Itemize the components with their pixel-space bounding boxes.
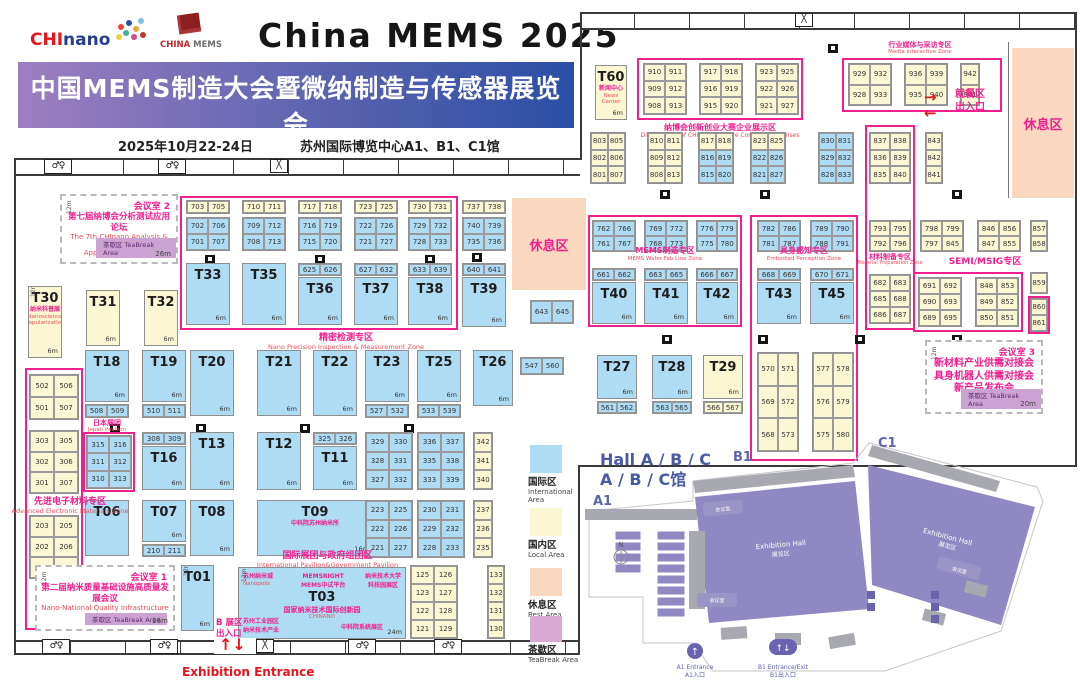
booth-group-668: 668669 [757,268,801,281]
booth-739: 739 [484,218,505,234]
booth-group-533: 533539 [417,404,461,418]
booth-T16-size: 6m [172,479,182,487]
booth-301: 301 [30,472,54,493]
meeting-room-3-size: 20m [1020,400,1036,408]
zone-advanced-en: Advanced Electronic Materials Zone [0,508,140,515]
booth-group-721: 722726721727 [354,217,398,251]
chinano-logo-text-red: CHI [30,30,63,50]
booth-T31: T316m [86,290,120,346]
booth-T43: T436m [757,282,801,324]
booth-920: 920 [721,97,742,114]
booth-855: 855 [999,236,1020,251]
booth-342: 342 [474,433,492,452]
booth-T29-size: 6m [729,388,739,396]
booth-T39-size: 6m [492,316,502,324]
booth-T20-label: T20 [199,356,226,369]
booth-303: 303 [30,431,54,452]
booth-850: 850 [976,310,997,326]
booth-T42: T426m [696,282,738,324]
booth-858: 858 [1031,236,1047,251]
booth-group-627: 627632 [354,263,398,276]
booth-group-857s: 857858 [1030,220,1048,252]
booth-703: 703 [187,201,208,213]
booth-309: 309 [164,433,185,444]
booth-T08-label: T08 [199,506,226,519]
booth-327: 327 [366,470,389,489]
booth-group-640: 640641 [462,263,506,276]
booth-827: 827 [768,166,785,183]
booth-237: 237 [474,501,492,520]
wall-left [14,158,16,655]
rest-area-left-label: 休息区 [529,235,568,254]
chinano-logo: CHInano [30,30,110,50]
booth-T08: T086m [190,500,234,556]
booth-859: 859 [1031,273,1047,293]
booth-128: 128 [434,602,457,620]
booth-719: 719 [320,218,341,234]
booth-132: 132 [488,584,504,602]
page-title: China MEMS 2025 [258,16,620,55]
meeting-room-1-title: 第二届纳米质量基础设施高质量发展会议 [37,583,173,604]
booth-567: 567 [723,402,742,413]
booth-T25-size: 6m [447,391,457,399]
meeting-room-2-id: 会议室 2 [62,196,176,212]
booth-T35-size: 6m [272,314,282,322]
booth-group-730: 730731 [408,200,452,214]
booth-563: 563 [653,402,672,413]
booth-T33-size: 6m [216,314,226,322]
booth-T03: 苏州纳米城 Nanopolis MEMSRIGHT MEMS中试平台 纳米技术大… [238,567,406,639]
legend-international: 国际区 International Area [528,477,590,504]
booth-group-800c: 817818816819815820 [698,132,734,184]
legend-swatch-local [530,508,562,536]
booth-691: 691 [919,278,940,294]
booth-T43-label: T43 [766,288,793,301]
booth-group-715: 716719715720 [298,217,342,251]
booth-939: 939 [926,64,947,85]
booth-643: 643 [531,301,552,323]
booth-632: 632 [376,264,397,275]
booth-T23-size: 6m [395,391,405,399]
booth-group-340s: 342341340 [473,432,493,490]
zone-media-cn: 行业媒体与采访专区 [845,41,995,49]
booth-T01-size: 6m [200,620,210,628]
booth-560: 560 [542,358,563,374]
booth-311: 311 [87,453,109,470]
door-icon [472,253,482,262]
booth-T07-label: T07 [151,506,178,519]
booth-310: 310 [87,471,109,488]
booth-T18: T186m [85,350,129,402]
booth-625: 625 [299,264,320,275]
booth-group-680s: 682683685688686687 [869,274,911,324]
elevator-icon [795,13,813,27]
booth-817: 817 [699,133,716,150]
booth-302: 302 [30,452,54,473]
booth-645: 645 [552,301,573,323]
booth-T08-size: 6m [220,545,230,553]
dining-arrow-right-icon: → [924,90,937,105]
booth-702: 702 [187,218,208,234]
t03-chinano: CHINANO [309,614,335,620]
floorplan-page: CHInano CHINA MEMS China MEMS 2025 中国MEM… [0,0,1080,691]
booth-group-663: 663665 [644,268,688,281]
zone-embodied-label: 具身感知专区 Embodied Perception Zone [750,246,858,262]
booth-627: 627 [355,264,376,275]
china-mems-logo-red: CHINA [160,40,193,50]
legend-international-en: International Area [528,488,590,504]
booth-772: 772 [666,221,687,236]
booth-935: 935 [905,85,926,106]
booth-837: 837 [870,133,890,150]
zone-japan-cn: 日本展团 [80,419,134,427]
booth-861: 861 [1031,315,1047,331]
booth-502: 502 [30,375,54,397]
booth-692: 692 [940,278,961,294]
booth-852: 852 [997,294,1018,310]
booth-T30-sub-en: Nanoscience Popularization [28,314,62,326]
booth-571: 571 [778,353,798,386]
booth-T22: T226m [313,350,357,416]
booth-716: 716 [299,218,320,234]
booth-group-561: 561562 [597,401,637,414]
meeting-room-2: 会议室 2 第七届纳博会分析测试应用论坛 The 7th CHInano Ana… [60,194,178,264]
booth-823: 823 [751,133,768,150]
booth-723: 723 [355,201,376,213]
banner: 中国MEMS制造大会暨微纳制造与传感器展览会 China MEMS Manufa… [18,62,574,128]
booth-308: 308 [143,433,164,444]
meeting-room-1-size: 26m [152,617,168,625]
booth-130: 130 [488,620,504,638]
wall-bottom-left-section [14,653,580,655]
booth-T12-size: 6m [287,479,297,487]
booth-928: 928 [849,85,870,106]
booth-725: 725 [376,201,397,213]
booth-307: 307 [54,472,78,493]
booth-233: 233 [441,538,464,557]
door-icon [760,190,770,199]
booth-T21-size: 6m [287,405,297,413]
booth-T18-size: 6m [115,391,125,399]
booth-732: 732 [430,218,451,234]
booth-722: 722 [355,218,376,234]
booth-group-527: 527532 [365,404,409,418]
booth-776: 776 [697,221,717,236]
booth-T11-label: T11 [322,452,349,465]
booth-group-508: 508509 [85,404,129,418]
booth-T12-label: T12 [266,438,293,451]
zone-material-en: Material Preparation Zone [850,261,930,267]
booth-T30-depth: 12m [30,286,37,297]
booth-228: 228 [418,538,441,557]
booth-738: 738 [484,201,505,213]
legend-swatch-international [530,445,562,473]
booth-687: 687 [890,307,910,323]
booth-T32: T326m [144,290,178,346]
booth-T36-size: 6m [328,314,338,322]
booth-335: 335 [418,452,441,471]
booth-851: 851 [997,310,1018,326]
booth-915: 915 [700,97,721,114]
booth-336: 336 [418,433,441,452]
booth-group-843s: 843842841 [925,132,943,184]
elevator-icon [270,159,288,173]
banner-title-cn: 中国MEMS制造大会暨微纳制造与传感器展览会 [18,69,574,141]
booth-T40-size: 6m [622,313,632,321]
zone-mems-en: MEMS Wafer Fab Line Zone [590,256,740,262]
booth-T60-sub-en: News Center [596,93,626,105]
booth-T27-size: 6m [623,388,633,396]
booth-717: 717 [299,201,320,213]
booth-group-837s: 837838836839835840 [869,132,911,184]
booth-833: 833 [836,166,853,183]
booth-T40-label: T40 [601,288,628,301]
booth-769: 769 [645,221,666,236]
legend-teabreak-cn: 茶歇区 [528,645,590,656]
booth-639: 639 [430,264,451,275]
booth-801: 801 [591,166,608,183]
toilet-icon [42,639,70,654]
booth-539: 539 [439,405,460,417]
booth-210: 210 [143,545,164,556]
booth-339: 339 [441,470,464,489]
booth-942: 942 [961,64,979,85]
booth-group-701: 702706701707 [186,217,230,251]
t03-cas: 中科院系统展区 [341,625,383,632]
booth-313: 313 [109,471,131,488]
booth-T28: T286m [652,355,692,399]
booth-686: 686 [870,307,890,323]
booth-group-703: 703705 [186,200,230,214]
booth-726: 726 [376,218,397,234]
booth-331: 331 [389,452,412,471]
booth-T30: T30纳米科普展Nanoscience Popularization6m12m [28,286,62,358]
a1-corridor [585,509,697,520]
booth-121: 121 [411,620,434,638]
booth-579: 579 [833,386,853,419]
booth-T33-label: T33 [195,269,222,282]
booth-728: 728 [409,234,430,250]
booth-670: 670 [811,269,832,280]
exhibition-entrance-label: Exhibition Entrance [182,666,314,678]
toilet-icon [348,639,376,654]
door-icon [758,335,768,344]
booth-T19-label: T19 [151,356,178,369]
booth-836: 836 [870,150,890,167]
booth-127: 127 [434,584,457,602]
booth-917: 917 [700,64,721,81]
event-date: 2025年10月22-24日 [118,136,253,155]
booth-T45: T456m [810,282,854,324]
zone-embodied-cn: 具身感知专区 [750,246,858,256]
booth-T19: T196m [142,350,186,402]
booth-T25-label: T25 [426,356,453,369]
booth-T20: T206m [190,350,234,416]
booth-707: 707 [208,234,229,250]
booth-718: 718 [320,201,341,213]
booth-913: 913 [665,97,686,114]
booth-T09-sub: 中科院苏州纳米所 [291,521,339,528]
booth-group-929s: 929932928933 [848,63,892,106]
booth-812: 812 [665,150,682,167]
booth-326: 326 [335,433,356,444]
booth-565: 565 [672,402,691,413]
booth-T37-label: T37 [363,283,390,296]
b1-entrance-en: B1 Entrance/Exit [758,664,809,671]
booth-805: 805 [608,133,625,150]
booth-T60: T60新闻中心News Center6m [595,65,627,120]
booth-123: 123 [411,584,434,602]
booth-group-790c: 793795792796 [869,220,911,252]
booth-T60-size: 6m [613,109,623,117]
booth-661: 661 [593,269,614,280]
wall-right-top [580,12,582,160]
booth-533: 533 [418,405,439,417]
booth-762: 762 [593,221,614,236]
entrance-b-line1: B 展区 [216,618,242,629]
booth-731: 731 [430,201,451,213]
booth-633: 633 [409,264,430,275]
booth-236: 236 [474,520,492,539]
booth-235: 235 [474,538,492,557]
booth-848: 848 [976,278,997,294]
booth-T60-label: T60 [598,71,625,84]
event-venue: 苏州国际博览中心A1、B1、C1馆 [300,136,500,155]
legend-swatch-rest [530,568,562,596]
booth-803: 803 [591,133,608,150]
booth-341: 341 [474,452,492,471]
booth-735: 735 [463,234,484,250]
booth-T27-label: T27 [604,361,631,374]
booth-910: 910 [644,64,665,81]
booth-927: 927 [777,97,798,114]
booth-570: 570 [758,353,778,386]
booth-group-717: 717718 [298,200,342,214]
booth-group-japan: 315316311312310313 [86,435,132,489]
booth-562: 562 [617,402,636,413]
booth-507: 507 [54,397,78,419]
booth-group-910s: 910911909912908913 [643,63,687,115]
b1-entrance-cn: B1出入口 [770,671,796,679]
booth-911: 911 [665,64,686,81]
booth-561: 561 [598,402,617,413]
booth-group-708: 709712708713 [242,217,286,251]
booth-T07: T076m [142,500,186,542]
zone-media-label: 行业媒体与采访专区 Media Interactive Zone [845,41,995,56]
booth-789: 789 [811,221,832,236]
booth-912: 912 [665,81,686,98]
booth-223: 223 [366,501,389,520]
booth-918: 918 [721,64,742,81]
booth-T16: T166m [142,446,186,490]
dining-line1: 就餐区 [955,88,985,101]
booth-group-710: 710711 [242,200,286,214]
booth-T38-label: T38 [417,283,444,296]
booth-792: 792 [870,236,890,251]
t03-main: 国家纳米技术国际创新园 [284,606,361,614]
booth-766: 766 [614,221,635,236]
c1-label: C1 [878,436,897,451]
booth-640: 640 [463,264,484,275]
booth-T43-size: 6m [787,313,797,321]
b1-hall-label-cn: 展览区 [772,549,791,559]
b1-label: B1 [733,450,752,465]
booth-806: 806 [608,150,625,167]
booth-T27: T276m [597,355,637,399]
t03-sip2: 纳米技术产业 [243,628,279,635]
china-mems-logo: CHINA MEMS [160,40,222,50]
booth-126: 126 [434,566,457,584]
booth-group-325: 325326 [313,432,357,445]
booth-713: 713 [264,234,285,250]
meeting-room-3-id: 会议室 3 [927,342,1041,358]
booth-577: 577 [813,353,833,386]
dining-line2: 出入口 [955,101,985,114]
booth-group-800d: 823825822826821827 [750,132,786,184]
booth-T60-sub: 新闻中心 [599,86,623,93]
booth-T36: T366m [298,277,342,325]
booth-527: 527 [366,405,387,417]
booth-919: 919 [721,81,742,98]
booth-group-210: 210211 [142,544,186,557]
booth-T23-label: T23 [374,356,401,369]
booth-222: 222 [366,520,389,539]
booth-203: 203 [30,516,54,537]
zone-advanced-label: 先进电子材料专区 Advanced Electronic Materials Z… [0,497,140,515]
china-mems-logo-gray: MEMS [193,40,222,50]
toilet-icon [44,159,72,174]
booth-843: 843 [926,133,942,150]
booth-720: 720 [320,234,341,250]
booth-T37-size: 6m [384,314,394,322]
booth-847: 847 [978,236,999,251]
booth-921: 921 [756,97,777,114]
booth-T12: T126m [257,432,301,490]
legend-rest-cn: 休息区 [528,600,590,611]
booth-849: 849 [976,294,997,310]
meeting-room-3-line2: 具身机器人供需对接会 [927,371,1041,384]
legend-local: 国内区 Local Area [528,540,590,559]
meeting-room-1-depth: 12m [41,572,48,585]
legend-teabreak-en: TeaBreak Area [528,656,590,664]
booth-669: 669 [779,269,800,280]
booth-group-661: 661662 [592,268,636,281]
meeting-blob-2-label: 会议室 [709,597,724,604]
booth-T26: T266m [473,350,513,406]
booth-815: 815 [699,166,716,183]
booth-706: 706 [208,218,229,234]
booth-853: 853 [997,278,1018,294]
door-icon [300,424,310,433]
booth-666: 666 [697,269,717,280]
t03-depth: 12m [241,569,248,582]
booth-330: 330 [389,433,412,452]
meeting-room-2-title: 第七届纳博会分析测试应用论坛 [62,212,176,233]
booth-793: 793 [870,221,890,236]
toilet-icon [150,639,178,654]
booth-737: 737 [463,201,484,213]
booth-group-220s: 223225222226221227 [365,500,413,558]
booth-group-728: 729732728733 [408,217,452,251]
a1-meeting-stack [615,531,685,617]
booth-736: 736 [484,234,505,250]
booth-856: 856 [999,221,1020,236]
booth-T09: T09中科院苏州纳米所16m [257,500,373,556]
booth-group-230s: 230231229232228233 [417,500,465,558]
rest-area-right-label: 休息区 [1023,114,1062,133]
a1-label: A1 [593,494,612,509]
dining-entrance-label: 就餐区 出入口 [955,88,985,114]
